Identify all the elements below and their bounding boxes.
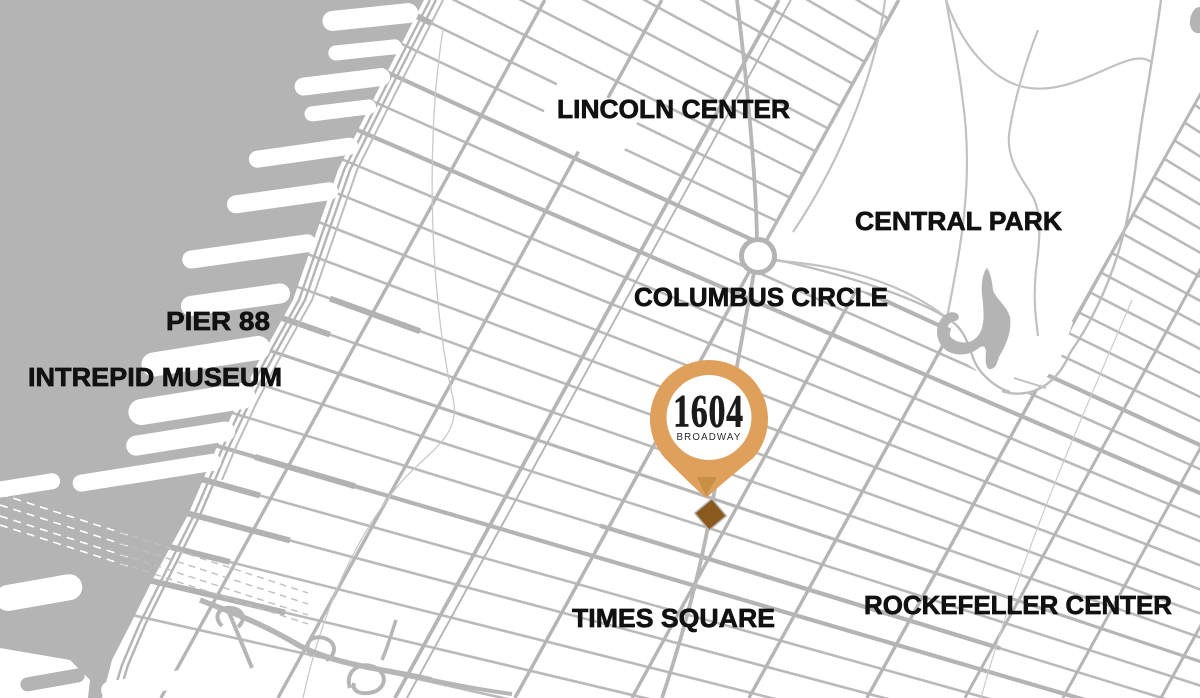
svg-text:COLUMBUS CIRCLE: COLUMBUS CIRCLE [634,282,888,312]
svg-text:TIMES SQUARE: TIMES SQUARE [572,603,775,633]
svg-text:1604: 1604 [673,385,744,436]
svg-text:LINCOLN CENTER: LINCOLN CENTER [557,94,790,124]
svg-text:BROADWAY: BROADWAY [677,432,742,443]
svg-text:CENTRAL PARK: CENTRAL PARK [855,206,1062,236]
svg-text:ROCKEFELLER CENTER: ROCKEFELLER CENTER [864,590,1172,620]
svg-text:INTREPID MUSEUM: INTREPID MUSEUM [28,362,282,392]
svg-text:PIER 88: PIER 88 [166,306,270,336]
